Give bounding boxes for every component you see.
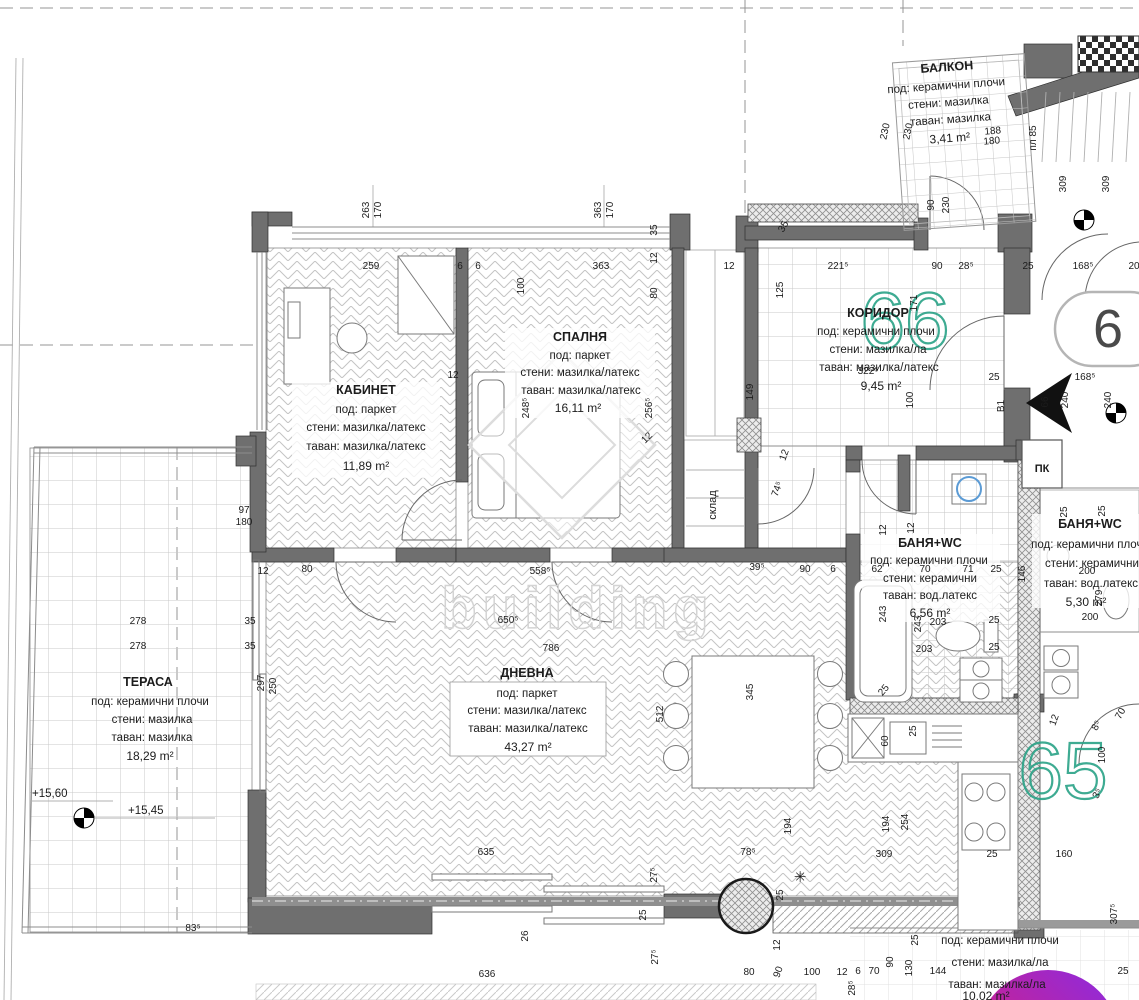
room-bedroom-name: СПАЛНЯ bbox=[553, 330, 607, 344]
dimension-label: 83⁵ bbox=[185, 923, 200, 934]
dimension-label: 60 bbox=[880, 735, 891, 747]
dimension-label: 25 bbox=[910, 934, 921, 946]
fridge-symbol: ✳ bbox=[794, 869, 807, 886]
dimension-label: 125 bbox=[775, 281, 786, 298]
chair bbox=[818, 746, 843, 771]
dimension-label: 6 bbox=[457, 261, 463, 272]
chair bbox=[664, 704, 689, 729]
dimension-label: 27⁵ bbox=[649, 867, 660, 882]
dimension-label: 25 bbox=[908, 725, 919, 737]
svg-text:16,11 m²: 16,11 m² bbox=[555, 401, 601, 415]
dimension-label: 170 bbox=[605, 201, 616, 218]
room-office-name: КАБИНЕТ bbox=[336, 383, 396, 397]
watermark-text: building bbox=[441, 576, 715, 641]
dimension-label: 146 bbox=[1017, 565, 1028, 582]
dimension-label: 71 bbox=[962, 564, 974, 575]
dimension-label: 200 bbox=[1079, 566, 1096, 577]
dimension-label: 259 bbox=[363, 261, 380, 272]
dimension-label: 12 bbox=[723, 261, 735, 272]
dimension-label: 25 bbox=[1059, 506, 1070, 518]
dimension-label: 12 bbox=[772, 939, 783, 951]
dimension-label: 194 bbox=[783, 817, 794, 834]
dimension-label: 363 bbox=[593, 201, 604, 218]
dimension-label: 263 bbox=[361, 201, 372, 218]
floor-plan-svg: ✳ БАЛКОН под: керамични плочи стени: маз… bbox=[0, 0, 1139, 1000]
dimension-label: 66 bbox=[1040, 396, 1051, 408]
dimension-label: 97 bbox=[238, 505, 250, 516]
svg-text:11,89 m²: 11,89 m² bbox=[343, 459, 389, 473]
dimension-label: 25 bbox=[638, 909, 649, 921]
svg-text:под: паркет: под: паркет bbox=[550, 350, 612, 362]
dimension-label: 180 bbox=[983, 135, 1001, 147]
dimension-label: 6 bbox=[475, 261, 481, 272]
dimension-label: 240 bbox=[1060, 391, 1071, 408]
dimension-label: 20 bbox=[1128, 261, 1139, 272]
dimension-label: 309 bbox=[876, 849, 893, 860]
dimension-label: 25 bbox=[775, 889, 786, 901]
dimension-label: 90 bbox=[772, 965, 786, 980]
dimension-label: 25 bbox=[988, 642, 1000, 653]
dimension-label: 256⁵ bbox=[644, 398, 655, 419]
room-living-name: ДНЕВНА bbox=[500, 666, 553, 680]
dimension-label: 100 bbox=[905, 391, 916, 408]
chair bbox=[818, 704, 843, 729]
dimension-label: 25 bbox=[1097, 505, 1108, 517]
dimension-label: 248⁵ bbox=[521, 398, 532, 419]
dimension-label: 25 bbox=[1117, 966, 1129, 977]
svg-text:под: керамични плочи: под: керамични плочи bbox=[91, 696, 209, 708]
dimension-label: 12 bbox=[906, 522, 917, 534]
svg-text:таван: вод.латекс: таван: вод.латекс bbox=[1044, 578, 1138, 590]
shaft-label: ПК bbox=[1035, 463, 1050, 475]
svg-text:под: паркет: под: паркет bbox=[497, 688, 559, 700]
svg-text:стени: мазилка/латекс: стени: мазилка/латекс bbox=[306, 422, 425, 434]
dimension-label: 130 bbox=[904, 959, 915, 976]
dimension-label: 221⁵ bbox=[828, 261, 849, 272]
dimension-label: 171 bbox=[909, 294, 920, 311]
dimension-label: 180 bbox=[236, 517, 253, 528]
room-bath-neighbor-name: БАНЯ+WC bbox=[1058, 517, 1122, 531]
dining-table bbox=[692, 656, 814, 788]
dimension-label: 90 bbox=[885, 956, 896, 968]
dimension-label: 363 bbox=[593, 261, 610, 272]
kitchen-counter-top bbox=[848, 714, 1018, 762]
dimension-label: 100 bbox=[516, 277, 527, 294]
dimension-label: 25 bbox=[1022, 261, 1034, 272]
dimension-label: 168⁵ bbox=[1075, 372, 1096, 383]
dimension-label: 25 bbox=[990, 564, 1002, 575]
dimension-label: 12 bbox=[649, 252, 660, 264]
office-chair bbox=[337, 323, 367, 353]
dimension-label: 635 bbox=[478, 847, 495, 858]
svg-text:стени: мазилка/латекс: стени: мазилка/латекс bbox=[520, 367, 639, 379]
dimension-label: 25 bbox=[988, 615, 1000, 626]
chair bbox=[818, 662, 843, 687]
dimension-label: 558⁵ bbox=[530, 566, 551, 577]
dimension-label: 170 bbox=[373, 201, 384, 218]
dimension-label: 309 bbox=[1058, 175, 1069, 192]
floor-plan-page: ✳ БАЛКОН под: керамични плочи стени: маз… bbox=[0, 0, 1139, 1000]
svg-text:таван: вод.латекс: таван: вод.латекс bbox=[883, 590, 977, 602]
dimension-label: 636 bbox=[479, 969, 496, 980]
dimension-label: 100 bbox=[1097, 746, 1108, 763]
svg-text:под: паркет: под: паркет bbox=[336, 404, 398, 416]
dimension-label: 12 bbox=[836, 967, 848, 978]
dimension-label: 25 bbox=[986, 849, 998, 860]
svg-text:стени: мазилка/ла: стени: мазилка/ла bbox=[829, 344, 927, 356]
svg-text:стени: мазилка: стени: мазилка bbox=[112, 714, 193, 726]
svg-text:43,27 m²: 43,27 m² bbox=[504, 740, 551, 754]
dimension-label: 39⁵ bbox=[749, 562, 764, 573]
svg-text:10,02 m²: 10,02 m² bbox=[962, 989, 1009, 1000]
dimension-label: 80 bbox=[649, 287, 660, 299]
dimension-label: 650⁵ bbox=[498, 615, 519, 626]
svg-text:таван: мазилка/латекс: таван: мазилка/латекс bbox=[521, 385, 641, 397]
dimension-label: 90 bbox=[926, 199, 937, 211]
svg-text:таван: мазилка: таван: мазилка bbox=[112, 732, 194, 744]
dimension-label: пл 85 bbox=[1028, 125, 1039, 151]
svg-text:под: керамични плочи: под: керамични плочи bbox=[1031, 539, 1139, 551]
dimension-label: 243 bbox=[913, 615, 924, 632]
dimension-label: 278 bbox=[130, 616, 147, 627]
dimension-label: 27⁵ bbox=[650, 949, 661, 964]
dimension-label: 322⁵ bbox=[858, 366, 879, 377]
dimension-label: 309 bbox=[1101, 175, 1112, 192]
balcony-area: БАЛКОН под: керамични плочи стени: мазил… bbox=[886, 54, 1036, 231]
corridor-passage-floor bbox=[758, 446, 846, 548]
window-band-west bbox=[257, 252, 267, 430]
dimension-label: 194 bbox=[881, 815, 892, 832]
dimension-label: 28⁵ bbox=[958, 261, 973, 272]
dimension-label: 78⁵ bbox=[740, 847, 755, 858]
dimension-label: 279 bbox=[1094, 589, 1105, 606]
elevation-label: +15,60 bbox=[32, 788, 68, 800]
dimension-label: 278 bbox=[130, 641, 147, 652]
svg-text:стени: мазилка/ла: стени: мазилка/ла bbox=[951, 957, 1049, 969]
dimension-label: 28⁵ bbox=[847, 980, 858, 995]
structural-column bbox=[719, 879, 773, 933]
chair bbox=[664, 746, 689, 771]
chair bbox=[664, 662, 689, 687]
dimension-label: 62 bbox=[871, 564, 883, 575]
dimension-label: 6 bbox=[830, 564, 836, 575]
dimension-label: 200 bbox=[1082, 612, 1099, 623]
dimension-label: 230 bbox=[878, 122, 892, 141]
svg-text:под: керамични плочи: под: керамични плочи bbox=[941, 935, 1059, 947]
dimension-label: 70 bbox=[868, 966, 880, 977]
room-terrace-name: ТЕРАСА bbox=[123, 675, 173, 689]
dimension-label: 230 bbox=[941, 196, 952, 213]
svg-text:таван: мазилка/латекс: таван: мазилка/латекс bbox=[468, 723, 588, 735]
dimension-label: 80 bbox=[301, 564, 313, 575]
svg-text:стени: мазилка/латекс: стени: мазилка/латекс bbox=[467, 705, 586, 717]
svg-text:9,45 m²: 9,45 m² bbox=[861, 379, 902, 393]
dimension-label: 160 bbox=[1056, 849, 1073, 860]
dimension-label: 35 bbox=[649, 224, 660, 236]
dimension-label: 243 bbox=[878, 605, 889, 622]
dimension-label: 35 bbox=[244, 616, 256, 627]
dimension-label: 100 bbox=[804, 967, 821, 978]
storage-label: склад bbox=[707, 490, 719, 520]
svg-text:3,41 m²: 3,41 m² bbox=[929, 130, 971, 147]
dimension-label: 12 bbox=[878, 524, 889, 536]
room-corridor-name: КОРИДОР bbox=[847, 306, 909, 320]
dimension-label: 512 bbox=[655, 705, 666, 722]
dimension-label: 149 bbox=[745, 383, 756, 400]
dimension-label: 26 bbox=[520, 930, 531, 942]
entrance-plate-number: 6 bbox=[1093, 299, 1123, 359]
dimension-label: 203 bbox=[930, 617, 947, 628]
dimension-label: 307⁵ bbox=[1109, 904, 1120, 925]
dimension-label: 70 bbox=[919, 564, 931, 575]
elevation-label: +15,45 bbox=[128, 805, 164, 817]
dimension-label: 6 bbox=[855, 966, 861, 977]
room-bath-main-name: БАНЯ+WC bbox=[898, 536, 962, 550]
dimension-label: 240 bbox=[1103, 391, 1114, 408]
dimension-label: 25 bbox=[988, 372, 1000, 383]
dimension-label: 203 bbox=[916, 644, 933, 655]
dimension-label: 297 bbox=[256, 674, 267, 691]
svg-text:18,29 m²: 18,29 m² bbox=[126, 749, 173, 763]
dimension-label: 80 bbox=[743, 967, 755, 978]
dimension-label: 35 bbox=[244, 641, 256, 652]
svg-text:таван: мазилка/латекс: таван: мазилка/латекс bbox=[306, 441, 426, 453]
dimension-label: 12 bbox=[257, 566, 269, 577]
dimension-label: 12 bbox=[447, 370, 459, 381]
dimension-label: В1 bbox=[996, 399, 1007, 412]
dimension-label: 254 bbox=[900, 813, 911, 830]
terrace-floor bbox=[30, 448, 252, 932]
dimension-label: 250 bbox=[268, 677, 279, 694]
dimension-label: 786 bbox=[543, 643, 560, 654]
svg-text:таван: мазилка/латекс: таван: мазилка/латекс bbox=[819, 362, 939, 374]
storage-shelves bbox=[686, 250, 744, 526]
dimension-label: 90 bbox=[799, 564, 811, 575]
dimension-label: 90 bbox=[931, 261, 943, 272]
svg-text:под: керамични плочи: под: керамични плочи bbox=[817, 326, 935, 338]
dimension-label: 144 bbox=[930, 966, 947, 977]
dimension-label: 168⁵ bbox=[1073, 261, 1094, 272]
window-band-top bbox=[292, 227, 670, 239]
apartment-number-65: 65 bbox=[1019, 726, 1108, 815]
dimension-label: 345 bbox=[745, 683, 756, 700]
